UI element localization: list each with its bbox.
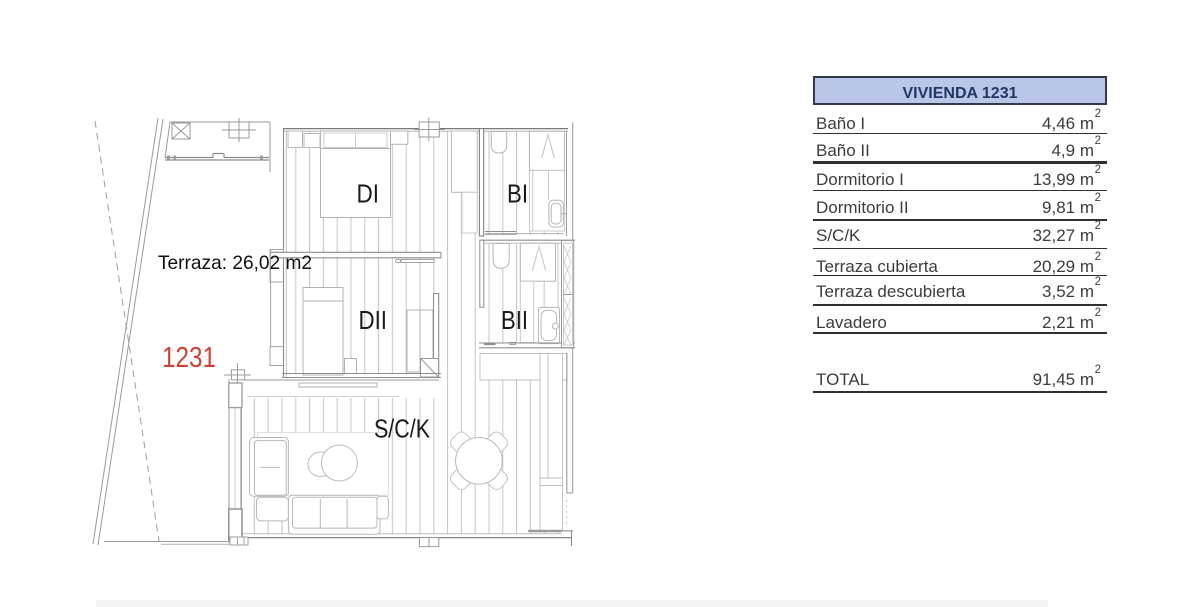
- svg-text:DII: DII: [359, 307, 388, 335]
- svg-text:1231: 1231: [162, 342, 216, 374]
- svg-text:DI: DI: [357, 181, 380, 209]
- svg-text:S/C/K: S/C/K: [374, 416, 430, 444]
- svg-text:BI: BI: [507, 181, 528, 209]
- svg-text:BII: BII: [501, 307, 528, 335]
- svg-text:Terraza: 26,02 m2: Terraza: 26,02 m2: [158, 252, 312, 274]
